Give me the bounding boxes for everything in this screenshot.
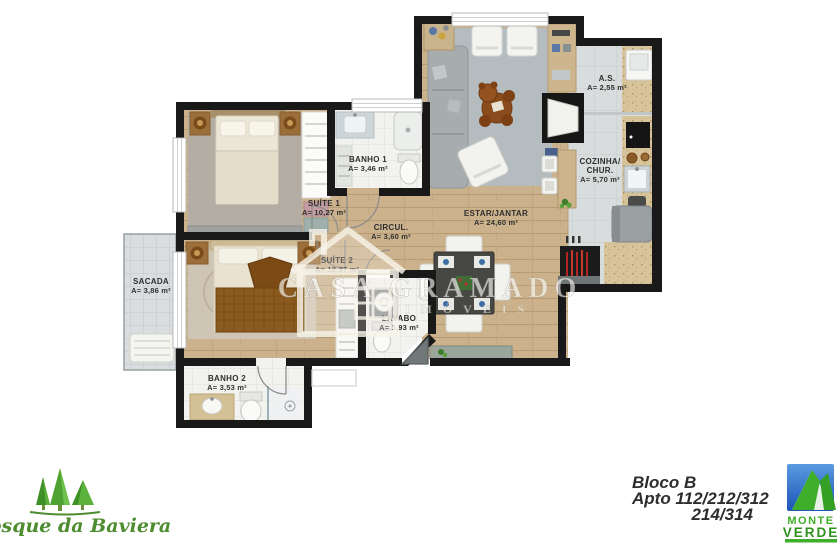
bosque-logo-text: Bosque da Baviera [0, 515, 171, 537]
label-cozinha-2: CHUR. [587, 166, 614, 175]
floorplan-image: SUÍTE 1 A= 10,27 m² BANHO 1 A= 3,46 m² C… [0, 0, 840, 543]
window-banho1 [352, 99, 422, 112]
label-as: A.S. [599, 74, 616, 83]
monte-verde-tagline-strip [785, 539, 837, 543]
label-banho2-area: A= 3,53 m² [207, 383, 247, 392]
label-banho1: BANHO 1 [349, 155, 387, 164]
bosque-da-baviera-logo: Bosque da Baviera [0, 468, 171, 537]
watermark-sub: IMÓVEIS [405, 302, 535, 316]
sacada-furniture [130, 334, 174, 362]
watermark-brand: CASA GRAMADO [278, 273, 583, 304]
window-living [452, 13, 548, 26]
label-circul-area: A= 3,60 m² [371, 232, 411, 241]
label-banho1-area: A= 3,46 m² [348, 164, 388, 173]
label-cozinha-area: A= 5,70 m² [580, 175, 620, 184]
label-sacada: SACADA [133, 277, 169, 286]
unit-info: Bloco B Apto 112/212/312 214/314 [631, 473, 769, 524]
window-suite1 [173, 138, 186, 212]
label-estar-area: A= 24,60 m² [474, 218, 518, 227]
unit-apartments2: 214/314 [691, 505, 754, 524]
label-estar: ESTAR/JANTAR [464, 209, 528, 218]
label-banho2: BANHO 2 [208, 374, 246, 383]
label-cozinha-1: COZINHA/ [579, 157, 621, 166]
label-sacada-area: A= 3,86 m² [131, 286, 171, 295]
monte-verde-line2: VERDE [783, 525, 840, 540]
label-as-area: A= 2,55 m² [587, 83, 627, 92]
trees-icon [30, 468, 100, 515]
floorplan-page: SUÍTE 1 A= 10,27 m² BANHO 1 A= 3,46 m² C… [0, 0, 840, 543]
label-circul: CIRCUL. [374, 223, 409, 232]
label-suite1: SUÍTE 1 [308, 199, 341, 208]
label-suite1-area: A= 10,27 m² [302, 208, 346, 217]
monte-verde-logo: MONTE VERDE [783, 464, 840, 543]
window-suite2 [173, 252, 186, 348]
